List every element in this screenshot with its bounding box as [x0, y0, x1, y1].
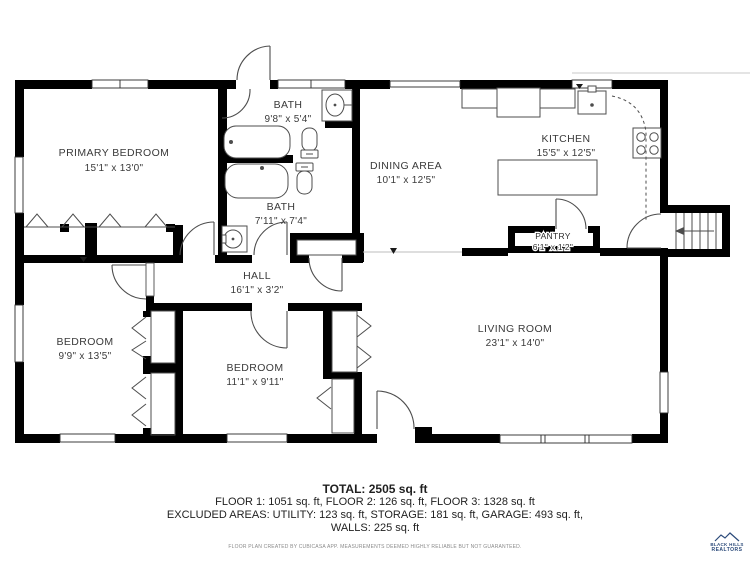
room-dims-bedroom-middle: 11'1" x 9'11"	[226, 377, 283, 388]
room-dims-primary-bedroom: 15'1" x 13'0"	[85, 163, 144, 174]
primary-bedroom-door	[180, 222, 214, 255]
room-label-hall: HALL	[243, 270, 271, 282]
pantry-door	[556, 199, 586, 229]
toilet-icon	[301, 128, 318, 158]
vanity-sink-icon	[322, 90, 352, 121]
stairs	[675, 213, 716, 249]
toilet-icon	[296, 163, 313, 194]
room-dims-pantry: 6'1" x 1'2"	[533, 242, 573, 252]
closets	[24, 214, 371, 435]
kitchen-counter	[462, 88, 575, 117]
room-label-kitchen: KITCHEN	[542, 133, 591, 145]
hall-closet-door	[309, 258, 342, 291]
pedestal-sink-icon	[222, 226, 247, 252]
floor-plan-page: PRIMARY BEDROOM 15'1" x 13'0" BATH 9'8" …	[0, 0, 750, 563]
floor-areas-text: FLOOR 1: 1051 sq. ft, FLOOR 2: 126 sq. f…	[0, 496, 750, 509]
total-area-text: TOTAL: 2505 sq. ft	[0, 483, 750, 496]
room-dims-bedroom-left: 9'9" x 13'5"	[59, 351, 112, 362]
kitchen-island	[498, 160, 597, 195]
mountain-logo-icon	[714, 532, 740, 542]
room-label-bedroom-left: BEDROOM	[56, 336, 113, 348]
walls-area-text: WALLS: 225 sq. ft	[0, 522, 750, 535]
bedroom-left-door	[112, 265, 146, 299]
kitchen-sink-icon	[578, 86, 606, 114]
room-label-pantry: PANTRY	[535, 231, 571, 241]
room-dims-dining-area: 10'1" x 12'5"	[377, 175, 436, 186]
room-label-primary-bedroom: PRIMARY BEDROOM	[59, 147, 170, 159]
room-label-bedroom-middle: BEDROOM	[226, 362, 283, 374]
bathtub-icon	[224, 126, 290, 158]
floor-plan-drawing: PRIMARY BEDROOM 15'1" x 13'0" BATH 9'8" …	[0, 0, 750, 470]
excluded-areas-text: EXCLUDED AREAS: UTILITY: 123 sq. ft, STO…	[0, 509, 750, 522]
room-dims-kitchen: 15'5" x 12'5"	[537, 148, 596, 159]
stove-icon	[633, 128, 661, 158]
room-label-bath-upper: BATH	[274, 99, 303, 111]
area-summary: TOTAL: 2505 sq. ft FLOOR 1: 1051 sq. ft,…	[0, 483, 750, 535]
room-label-bath-lower: BATH	[267, 201, 296, 213]
room-label-living-room: LIVING ROOM	[478, 323, 552, 335]
logo-type-text: REALTORS	[705, 547, 749, 553]
brokerage-logo: BLACK HILLS REALTORS	[705, 532, 749, 553]
room-label-dining-area: DINING AREA	[370, 160, 442, 172]
disclaimer-text: FLOOR PLAN CREATED BY CUBICASA APP. MEAS…	[0, 544, 750, 550]
front-entry-door	[377, 391, 414, 429]
room-dims-bath-lower: 7'11" x 7'4"	[255, 216, 307, 227]
stair-door	[627, 214, 661, 248]
room-dims-living-room: 23'1" x 14'0"	[486, 338, 545, 349]
interior-walls	[18, 89, 730, 435]
bathtub-icon	[225, 164, 288, 198]
room-dims-bath-upper: 9'8" x 5'4"	[264, 114, 311, 125]
room-dims-hall: 16'1" x 3'2"	[231, 285, 284, 296]
bedroom-middle-door	[251, 311, 287, 348]
